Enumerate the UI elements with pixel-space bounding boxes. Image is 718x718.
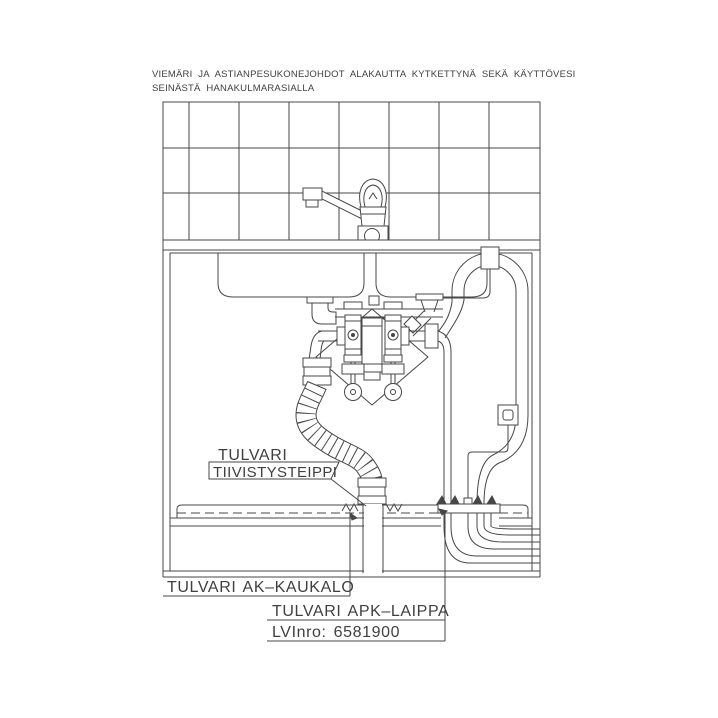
power-cable: [468, 425, 508, 504]
valve-right: [382, 302, 404, 401]
technical-drawing-page: VIEMÄRI JA ASTIANPESUKONEJOHDOT ALAKAUTT…: [0, 0, 718, 718]
faucet-spout: [322, 191, 362, 219]
right-bowl: [376, 253, 487, 297]
callout-dishwasher-flange: TULVARI APK–LAIPPA: [272, 603, 449, 621]
faucet-body: [360, 207, 386, 226]
callout-hose-seal-line2: TIIVISTYSTEIPPI: [213, 464, 337, 481]
cap-right: [385, 384, 402, 401]
cap-left: [345, 384, 362, 401]
left-bowl: [218, 253, 364, 297]
outlet-socket: [498, 405, 518, 425]
valve-left: [342, 302, 364, 401]
loop-clamp: [481, 247, 499, 269]
plinth-pipe-bends: [444, 526, 540, 563]
tile-wall: [163, 102, 540, 240]
callout-hose-seal-line1: TULVARI: [218, 447, 287, 465]
cabinet: [163, 250, 540, 577]
sink-bowls: [218, 253, 487, 297]
faucet-spout-tip: [303, 188, 322, 200]
drawing-title-line1: VIEMÄRI JA ASTIANPESUKONEJOHDOT ALAKAUTT…: [152, 69, 576, 80]
vent-cap: [369, 296, 379, 305]
callout-drip-tray: TULVARI AK–KAUKALO: [167, 579, 354, 597]
supply-pipes: [438, 331, 451, 504]
faucet: [303, 179, 388, 244]
faucet-nozzle: [306, 200, 318, 207]
floor-drain-pipe: [363, 504, 383, 573]
drawing-title-line2: SEINÄSTÄ HANAKULMARASIALLA: [152, 83, 314, 94]
callout-lvi-number: LVInro: 6581900: [272, 624, 400, 642]
